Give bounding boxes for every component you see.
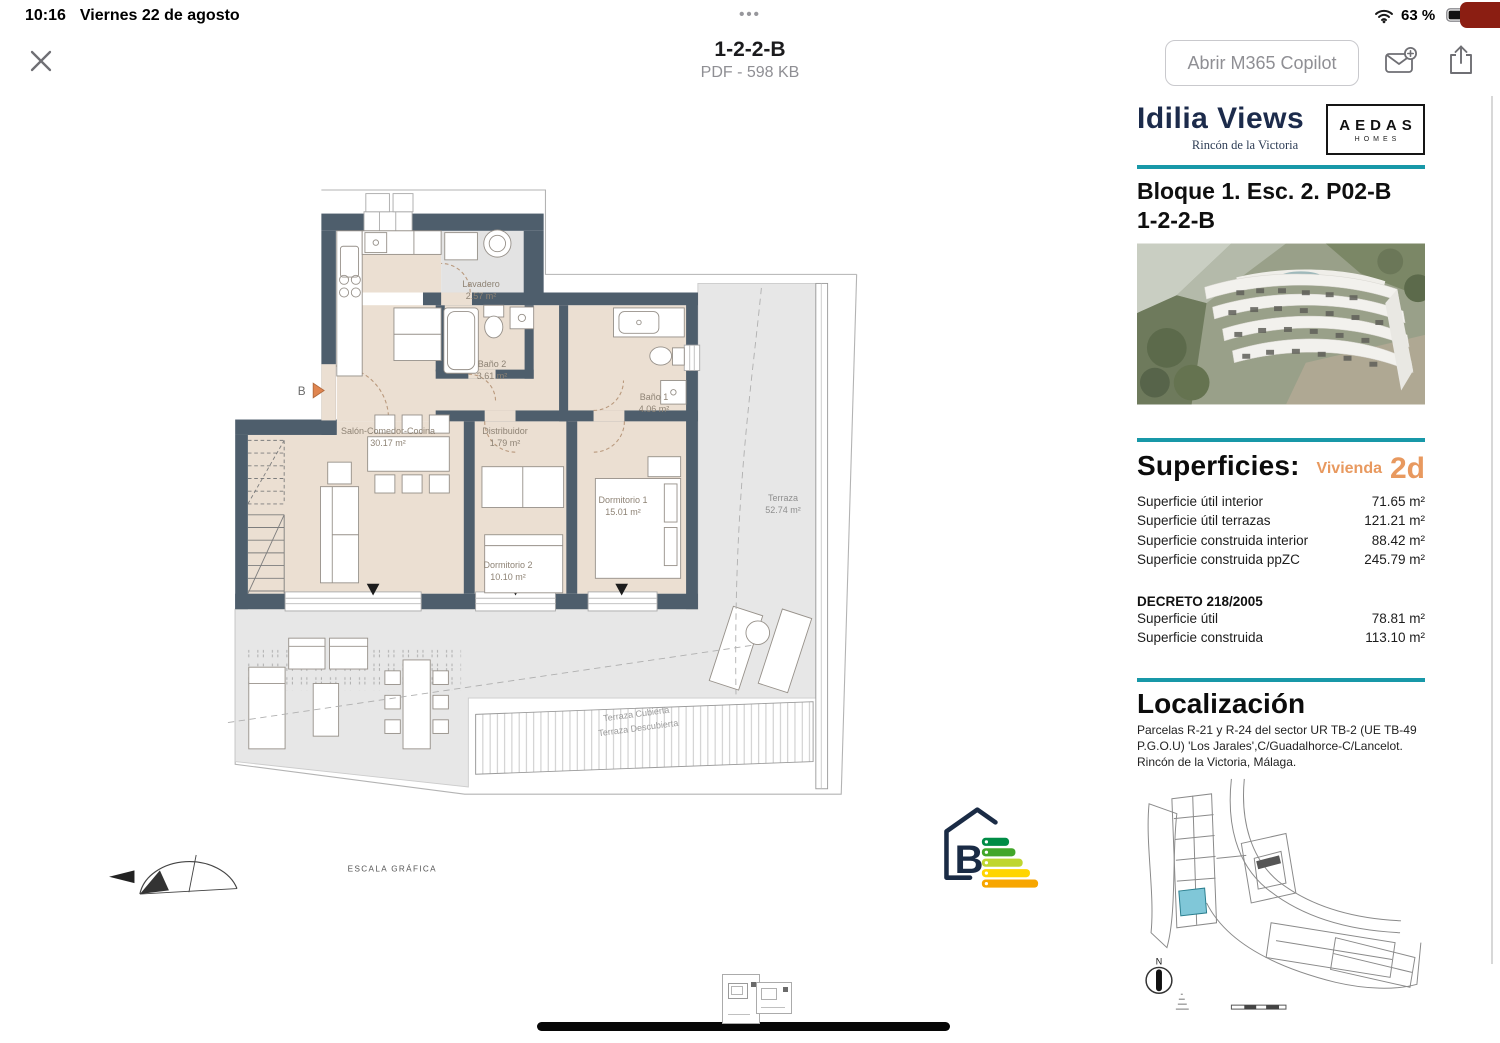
superficies-heading: Superficies: bbox=[1137, 450, 1300, 482]
localizacion-heading: Localización bbox=[1137, 688, 1425, 720]
entry-marker: B bbox=[298, 383, 324, 398]
site-map: N bbox=[1137, 774, 1425, 1027]
energy-rating-letter: B bbox=[955, 838, 984, 882]
page-thumbnail-2[interactable] bbox=[756, 982, 792, 1014]
scale-label: ESCALA GRÁFICA bbox=[348, 863, 437, 873]
mail-add-icon[interactable] bbox=[1385, 47, 1417, 80]
room-label-salon: Salón-Comedor-Cocina30.17 m² bbox=[303, 425, 473, 449]
developer-logo: AEDAS HOMES bbox=[1326, 104, 1425, 155]
teal-rule bbox=[1137, 165, 1425, 169]
teal-rule bbox=[1137, 438, 1425, 442]
brand-location: Rincón de la Victoria bbox=[1137, 138, 1304, 153]
page-thumbnail-1[interactable] bbox=[722, 974, 760, 1024]
wifi-icon bbox=[1374, 8, 1394, 24]
table-row: Superficie útil interior71.65 m² bbox=[1137, 492, 1425, 512]
room-label-dormitorio1: Dormitorio 115.01 m² bbox=[573, 494, 673, 518]
room-label-distribuidor: Distribuidor1.79 m² bbox=[460, 425, 550, 449]
north-symbol bbox=[109, 855, 237, 894]
table-row: Superficie construida ppZC245.79 m² bbox=[1137, 550, 1425, 570]
ipad-screen: 10:16 Viernes 22 de agosto ••• 63 % 1-2-… bbox=[0, 0, 1500, 1043]
room-label-dormitorio2: Dormitorio 210.10 m² bbox=[458, 559, 558, 583]
brand-name: Idilia Views bbox=[1137, 104, 1304, 134]
decreto-heading: DECRETO 218/2005 bbox=[1137, 594, 1425, 609]
share-icon[interactable] bbox=[1447, 44, 1475, 81]
dwelling-code: 2d bbox=[1390, 455, 1425, 482]
room-label-terraza: Terraza52.74 m² bbox=[738, 492, 828, 516]
table-row: Superficie construida interior88.42 m² bbox=[1137, 531, 1425, 551]
unit-title: Bloque 1. Esc. 2. P02-B 1-2-2-B bbox=[1137, 177, 1425, 235]
corner-red-indicator bbox=[1460, 2, 1500, 28]
north-label: N bbox=[1156, 957, 1162, 967]
more-dots-indicator[interactable]: ••• bbox=[0, 6, 1500, 23]
room-label-bano2: Baño 23.61 m² bbox=[452, 358, 532, 382]
energy-badge: B bbox=[946, 810, 1038, 888]
plan-info-panel: Idilia Views Rincón de la Victoria AEDAS… bbox=[1137, 104, 1425, 1027]
brand-row: Idilia Views Rincón de la Victoria AEDAS… bbox=[1137, 104, 1425, 155]
room-label-bano1: Baño 14.06 m² bbox=[614, 391, 694, 415]
dwelling-label: Vivienda bbox=[1316, 460, 1382, 482]
room-label-lavadero: Lavadero2.57 m² bbox=[436, 278, 526, 302]
battery-percent: 63 % bbox=[1401, 7, 1435, 24]
open-copilot-label: Abrir M365 Copilot bbox=[1187, 53, 1336, 74]
floor-plan-drawing: B B ESCAL bbox=[0, 92, 1100, 992]
decreto-table: Superficie útil78.81 m² Superficie const… bbox=[1137, 609, 1425, 648]
open-copilot-button[interactable]: Abrir M365 Copilot bbox=[1165, 40, 1359, 86]
table-row: Superficie útil78.81 m² bbox=[1137, 609, 1425, 629]
localizacion-description: Parcelas R-21 y R-24 del sector UR TB-2 … bbox=[1137, 723, 1425, 770]
entry-marker-label: B bbox=[298, 385, 306, 398]
superficies-table: Superficie útil interior71.65 m² Superfi… bbox=[1137, 492, 1425, 570]
teal-rule bbox=[1137, 678, 1425, 682]
building-photo bbox=[1137, 243, 1425, 410]
table-row: Superficie útil terrazas121.21 m² bbox=[1137, 511, 1425, 531]
table-row: Superficie construida113.10 m² bbox=[1137, 628, 1425, 648]
page-edge-line bbox=[1491, 96, 1493, 964]
